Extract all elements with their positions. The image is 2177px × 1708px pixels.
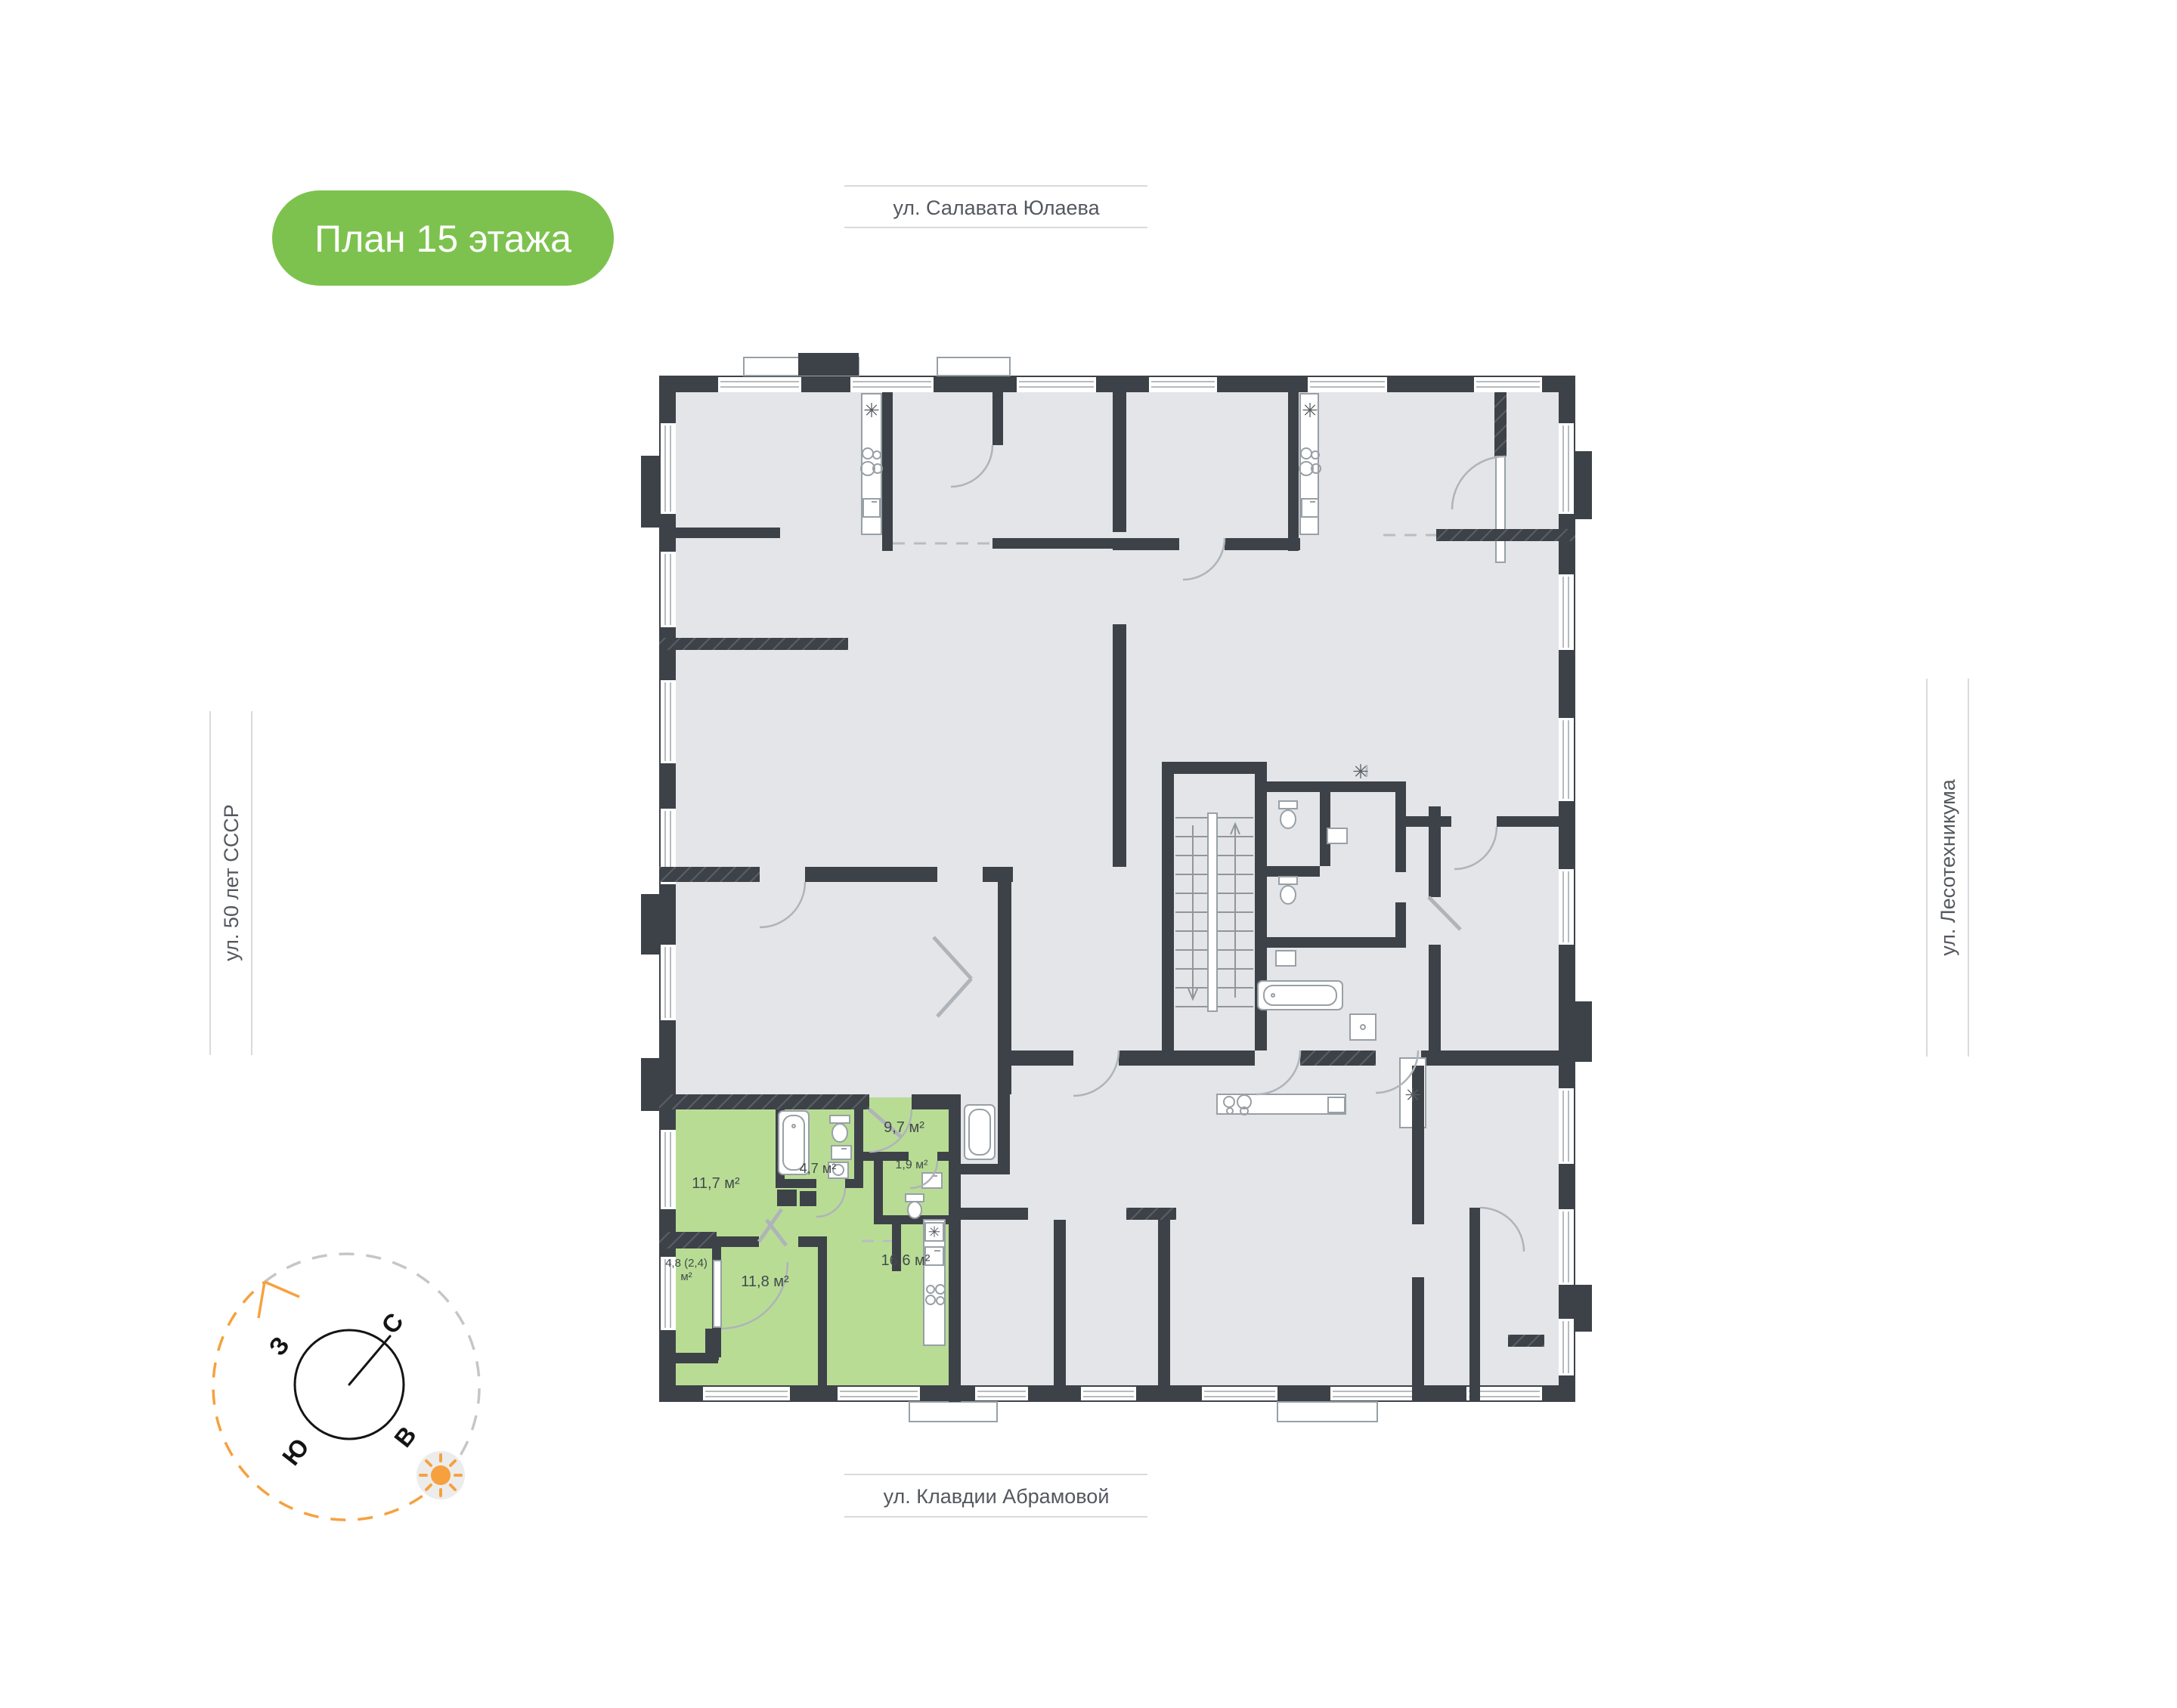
- shower-icon: [1350, 1014, 1376, 1040]
- sink-icon: [922, 1173, 942, 1188]
- sink-icon: [1328, 1097, 1345, 1112]
- vent-icon: ✳: [928, 1224, 941, 1241]
- vent-icon: ✳: [1404, 1084, 1421, 1106]
- bathtub-icon: [1258, 981, 1342, 1010]
- north-arrow-icon: [259, 1282, 299, 1318]
- room-area-label: 16,6 м²: [881, 1252, 931, 1269]
- vent-icon: ✳: [1352, 760, 1369, 783]
- room-area-label: 11,7 м²: [692, 1175, 740, 1192]
- street-label-right: ул. Лесотехникума: [1927, 679, 1968, 1057]
- toilet-icon: [1279, 877, 1297, 904]
- street-label-top: ул. Салавата Юлаева: [844, 186, 1147, 227]
- sink-icon: [863, 499, 880, 517]
- sink-icon: [1327, 828, 1347, 843]
- toilet-icon: [830, 1115, 850, 1142]
- room-area-label: 4,7 м²: [800, 1161, 836, 1176]
- compass-west-label: З: [263, 1331, 295, 1360]
- street-label-bottom: ул. Клавдии Абрамовой: [844, 1474, 1147, 1517]
- building: ✳ ✳ ✳ ✳: [641, 353, 1592, 1422]
- floor-badge: План 15 этажа: [272, 190, 614, 286]
- street-name-bottom: ул. Клавдии Абрамовой: [884, 1485, 1110, 1508]
- street-name-right: ул. Лесотехникума: [1937, 778, 1959, 955]
- sink-icon: [1302, 499, 1318, 517]
- room-area-label: 9,7 м²: [884, 1119, 924, 1136]
- sun-icon: [417, 1451, 465, 1499]
- sink-icon: [831, 1146, 851, 1159]
- vent-icon: ✳: [863, 399, 880, 422]
- compass-north-label: С: [376, 1307, 409, 1339]
- street-name-top: ул. Салавата Юлаева: [893, 196, 1100, 219]
- compass: З С Ю В: [213, 1254, 479, 1520]
- vent-icon: ✳: [1302, 399, 1318, 422]
- compass-east-label: В: [389, 1421, 422, 1453]
- toilet-icon: [1279, 801, 1297, 828]
- room-area-label: 11,8 м²: [741, 1273, 789, 1290]
- bathtub-icon: [965, 1105, 995, 1159]
- floor-badge-label: План 15 этажа: [314, 218, 571, 260]
- room-area-label: 1,9 м²: [895, 1159, 928, 1171]
- toilet-icon: [906, 1194, 924, 1218]
- street-label-left: ул. 50 лет СССР: [210, 711, 252, 1055]
- floor-plan-svg: План 15 этажа ул. Салавата Юлаева ул. Кл…: [0, 0, 2177, 1708]
- sink-icon: [1276, 951, 1296, 966]
- compass-south-label: Ю: [277, 1433, 314, 1471]
- floor-plan-page: План 15 этажа ул. Салавата Юлаева ул. Кл…: [0, 0, 2177, 1708]
- street-name-left: ул. 50 лет СССР: [220, 804, 243, 961]
